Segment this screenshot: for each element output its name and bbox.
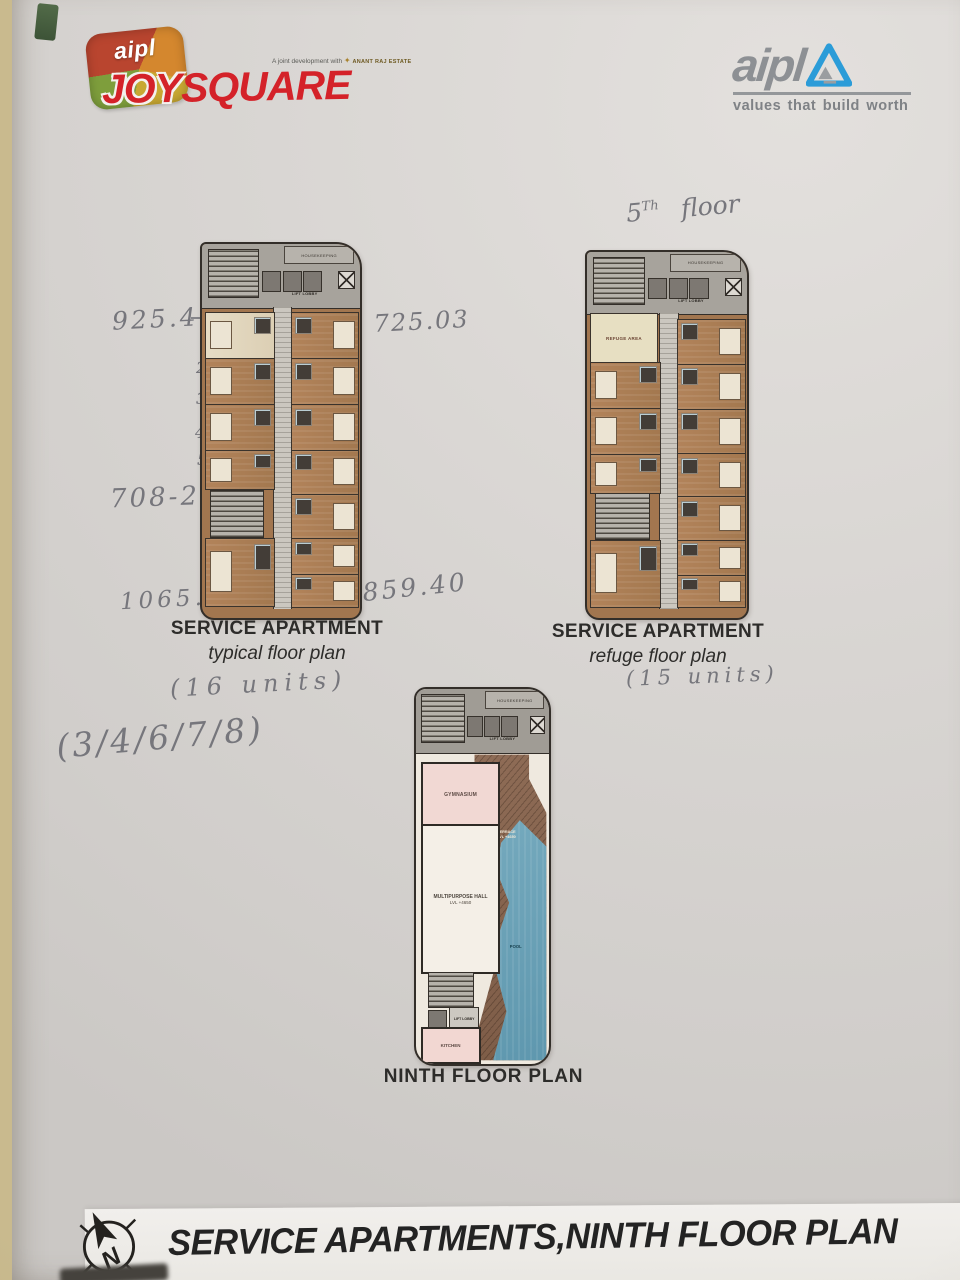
staircase — [208, 249, 259, 298]
staircase — [595, 493, 650, 540]
apartment-unit — [677, 496, 746, 540]
apartment-unit — [677, 540, 746, 576]
multipurpose-hall: MULTIPURPOSE HALL LVL +4650 — [421, 824, 499, 974]
gymnasium-room: GYMNASIUM — [421, 762, 499, 828]
service-core: HOUSEKEEPING LIFT LOBBY — [416, 689, 549, 754]
service-room — [501, 716, 518, 737]
apartment-unit — [291, 312, 359, 359]
paper-sheet — [12, 0, 960, 1280]
lift-lobby-label: LIFT LOBBY — [483, 736, 523, 741]
apartment-unit — [291, 538, 359, 575]
aipl-wordmark: aipl — [731, 42, 807, 88]
apartment-unit — [205, 538, 275, 607]
apartment-unit — [291, 358, 359, 405]
aipl-logo: aipl values that build worth — [733, 42, 913, 122]
apartment-unit — [291, 404, 359, 451]
typical-floor-plan: HOUSEKEEPING LIFT LOBBY — [200, 242, 362, 620]
apartment-unit — [677, 453, 746, 497]
service-room — [669, 278, 689, 299]
ninth-floor-plan: HOUSEKEEPING LIFT LOBBY TERRACE LVL +465… — [414, 687, 551, 1066]
housekeeping-room: HOUSEKEEPING — [485, 691, 544, 710]
service-room — [648, 278, 668, 299]
apartment-unit — [677, 364, 746, 410]
apartment-unit — [205, 312, 275, 359]
corner-mark — [34, 3, 59, 41]
aipl-tagline: values that build worth — [733, 98, 913, 114]
service-room — [689, 278, 709, 299]
joysquare-logo: aipl JOYSQUARE A joint development with … — [86, 26, 416, 118]
refuge-area: REFUGE AREA — [590, 313, 658, 363]
ninth-plan-caption: NINTH FLOOR PLAN — [381, 1066, 586, 1088]
joysquare-aipl-text: aipl — [113, 34, 157, 65]
apartment-unit — [590, 540, 661, 608]
lift-lobby-label: LIFT LOBBY — [281, 291, 328, 296]
apartment-unit — [205, 450, 275, 491]
lift-shaft — [338, 271, 355, 290]
lift-shaft — [725, 278, 742, 296]
apartment-unit — [291, 450, 359, 495]
apartment-unit — [677, 319, 746, 365]
staircase — [210, 490, 264, 538]
aipl-triangle-icon — [806, 42, 852, 88]
aipl-divider — [733, 92, 911, 95]
apartment-unit — [677, 409, 746, 455]
joysquare-tagline: A joint development with ✦ ANANT RAJ EST… — [272, 56, 432, 65]
refuge-floor-plan: HOUSEKEEPING LIFT LOBBY REFUGE AREA — [585, 250, 749, 620]
kitchen-room: KITCHEN — [421, 1027, 481, 1063]
pool-label: POOL — [501, 944, 530, 949]
service-room — [262, 271, 281, 292]
partner-emblem-icon: ✦ — [344, 56, 351, 65]
staircase — [593, 257, 645, 305]
staircase — [428, 972, 474, 1008]
service-core: HOUSEKEEPING LIFT LOBBY — [587, 252, 747, 315]
typical-plan-caption: SERVICE APARTMENT typical floor plan — [157, 618, 397, 665]
apartment-unit — [291, 574, 359, 608]
housekeeping-room: HOUSEKEEPING — [670, 254, 741, 272]
service-room — [428, 1010, 447, 1029]
service-room — [484, 716, 501, 737]
apartment-unit — [205, 404, 275, 451]
apartment-unit — [677, 575, 746, 608]
apartment-unit — [590, 454, 661, 494]
apartment-unit — [590, 362, 661, 409]
aipl-brand-row: aipl — [733, 42, 913, 88]
apartment-unit — [291, 494, 359, 539]
service-core: HOUSEKEEPING LIFT LOBBY — [202, 244, 360, 309]
lift-shaft — [530, 716, 545, 735]
apartment-unit — [590, 408, 661, 455]
lift-lobby-label: LIFT LOBBY — [667, 298, 715, 303]
service-room — [303, 271, 322, 292]
photographed-floorplan-sheet: aipl JOYSQUARE A joint development with … — [0, 0, 960, 1280]
apartment-unit — [205, 358, 275, 405]
joysquare-wordmark: JOYSQUARE — [102, 62, 351, 113]
refuge-plan-caption: SERVICE APARTMENT refuge floor plan — [538, 621, 778, 668]
service-room — [283, 271, 302, 292]
staircase — [421, 694, 464, 743]
service-room — [467, 716, 484, 737]
central-corridor — [659, 313, 678, 609]
central-corridor — [273, 307, 292, 609]
housekeeping-room: HOUSEKEEPING — [284, 246, 354, 265]
